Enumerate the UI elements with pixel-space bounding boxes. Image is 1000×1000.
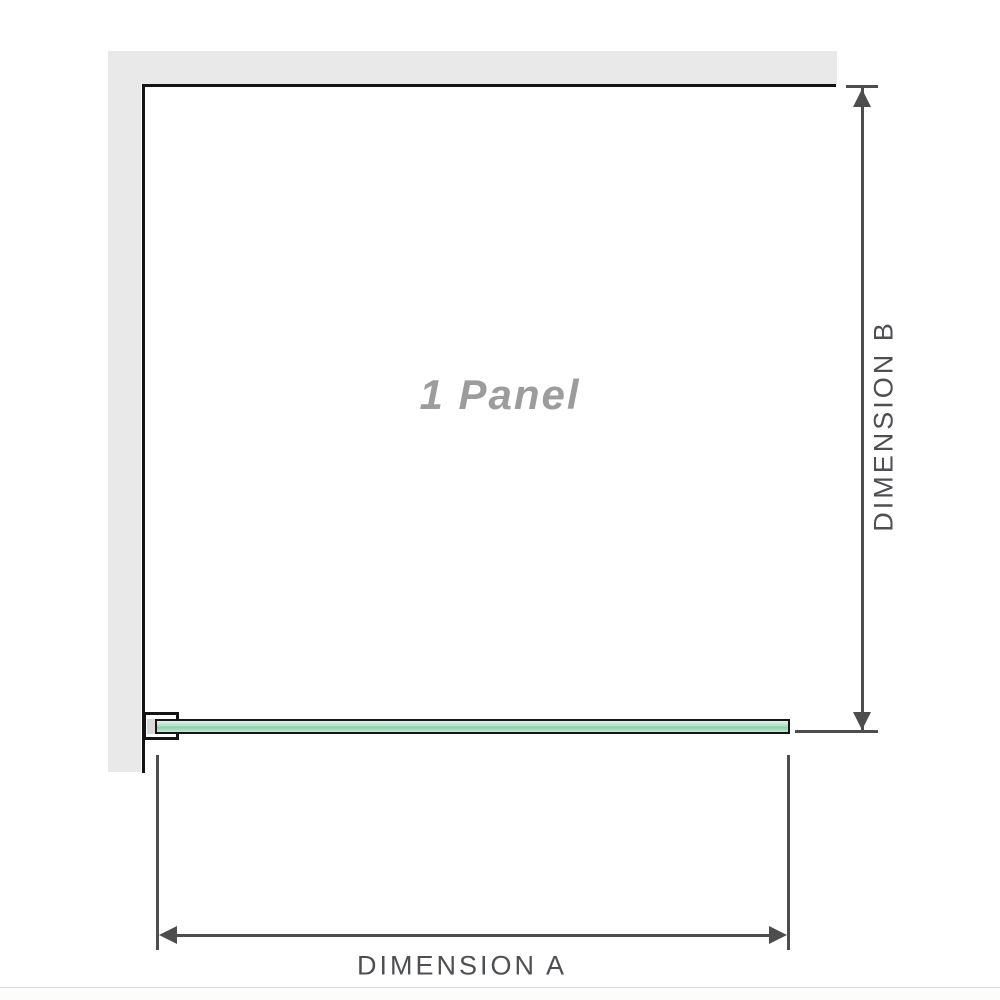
arrow-down-icon <box>853 712 871 730</box>
arrow-left-icon <box>159 926 177 944</box>
shower-panel-diagram: 1 Panel DIMENSION B DIMENSION A <box>0 0 1000 1000</box>
dimension-a-label: DIMENSION A <box>357 951 567 982</box>
arrow-right-icon <box>769 926 787 944</box>
wall-top <box>108 51 837 84</box>
dimension-a-line <box>163 934 783 937</box>
wall-face-line-left <box>142 84 145 773</box>
wall-face-line-top <box>142 84 836 87</box>
glass-panel <box>155 719 790 734</box>
dimension-a-extension-left <box>156 755 159 950</box>
dimension-b-label: DIMENSION B <box>869 320 900 532</box>
arrow-up-icon <box>853 89 871 107</box>
dimension-b-bottom-tick <box>795 730 878 733</box>
wall-left <box>108 51 141 772</box>
panel-count-label: 1 Panel <box>419 371 580 419</box>
footer-background <box>0 988 1000 1000</box>
dimension-a-extension-right <box>787 755 790 950</box>
dimension-b-line <box>861 88 864 731</box>
